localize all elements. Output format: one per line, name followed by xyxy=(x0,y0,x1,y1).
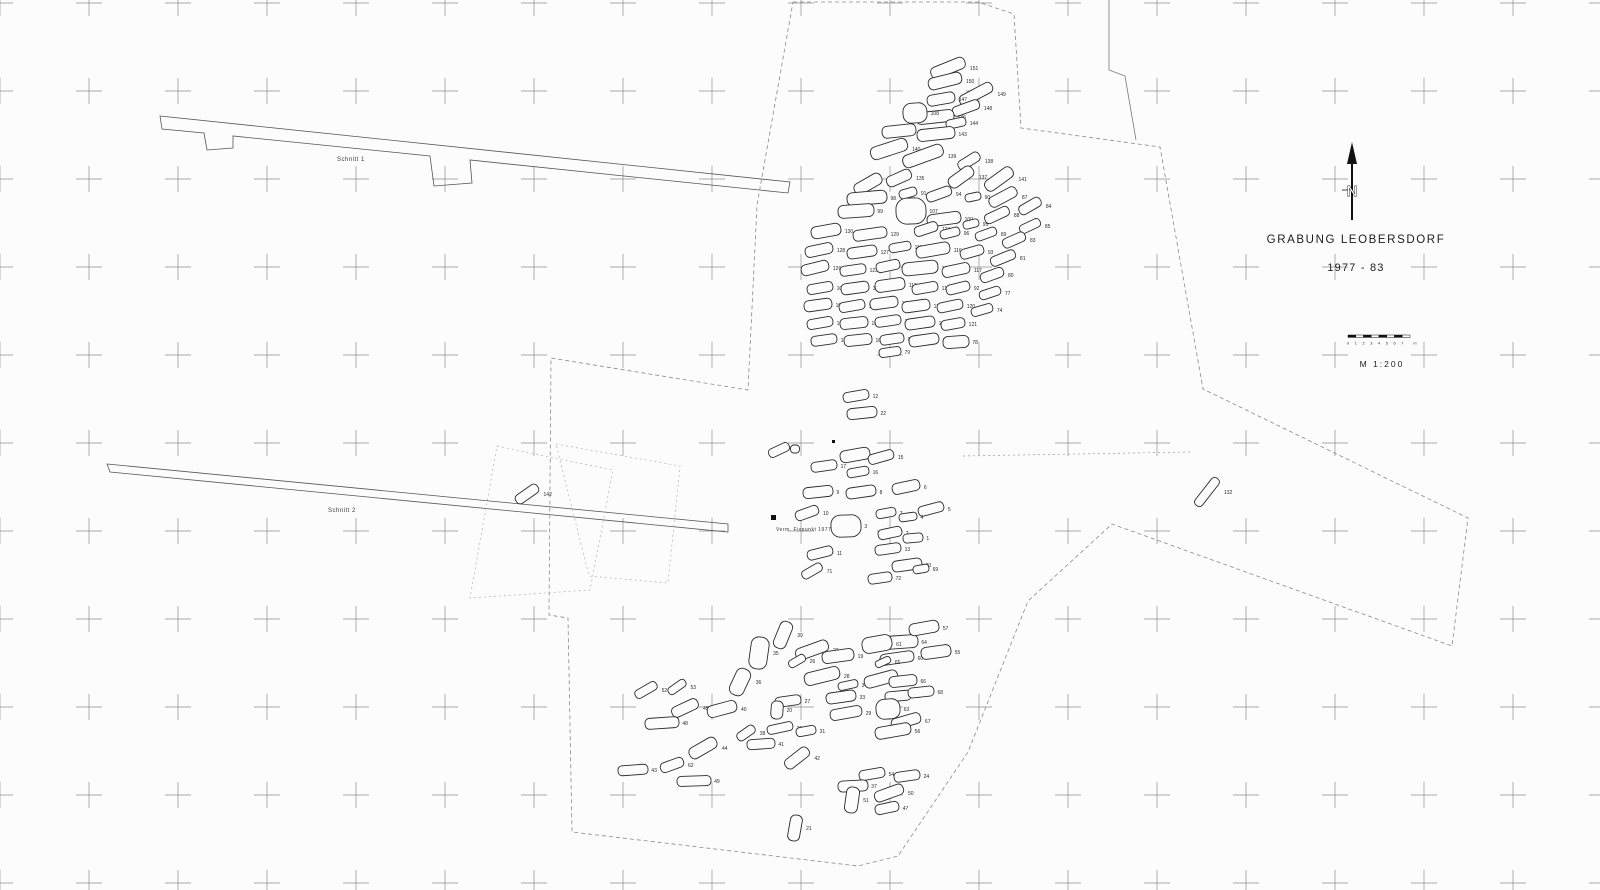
grave-number: 132 xyxy=(1224,490,1233,496)
map-years: 1977 - 83 xyxy=(1236,262,1476,274)
grave-number: 28 xyxy=(844,674,850,680)
grave-number: 64 xyxy=(921,640,927,646)
grave-number: 42 xyxy=(814,756,820,762)
grave-number: 55 xyxy=(955,650,961,656)
grave-number: 15 xyxy=(898,455,904,461)
grave-feature xyxy=(825,689,856,704)
grave-feature xyxy=(983,205,1011,225)
scale-tick-label: 6 xyxy=(1393,342,1395,346)
grave-features: 1511501491471481461081441451431401391381… xyxy=(513,56,1232,842)
grave-number: 9 xyxy=(836,490,839,496)
grave-feature xyxy=(936,298,964,313)
grave-feature xyxy=(633,680,658,700)
grave-feature xyxy=(943,335,970,349)
grave-feature xyxy=(748,636,770,670)
grave-feature xyxy=(873,783,905,804)
grave-number: 80 xyxy=(1008,273,1014,279)
grave-feature xyxy=(839,446,871,463)
grave-number: 40 xyxy=(741,707,747,713)
scale-tick-label: 4 xyxy=(1378,342,1380,346)
grave-number: 36 xyxy=(756,680,762,686)
scale-tick-label: 3 xyxy=(1370,342,1372,346)
grave-number: 37 xyxy=(871,784,877,790)
grave-number: 63 xyxy=(904,707,910,713)
grave-number: 1 xyxy=(926,536,929,542)
grave-feature xyxy=(879,332,904,345)
grave-number: 16 xyxy=(873,470,879,476)
grave-feature xyxy=(727,666,752,698)
grave-feature xyxy=(874,722,912,740)
grave-feature xyxy=(925,185,953,203)
grave-number: 141 xyxy=(1018,177,1027,183)
grave-feature xyxy=(767,441,791,458)
grave-feature xyxy=(800,259,830,276)
grave-number: 143 xyxy=(959,132,968,138)
grave-number: 33 xyxy=(860,695,866,701)
grave-number: 148 xyxy=(984,106,993,112)
grave-number: 48 xyxy=(682,721,688,727)
grave-feature xyxy=(772,620,795,651)
grave-feature xyxy=(974,226,998,242)
scale-bar: 01234567m xyxy=(1338,332,1426,348)
grave-feature xyxy=(896,197,927,224)
grave-feature xyxy=(706,699,738,718)
grave-feature xyxy=(940,317,965,331)
grave-number: 65 xyxy=(895,660,901,666)
grave-feature xyxy=(875,698,900,720)
grave-number: 94 xyxy=(956,192,962,198)
grave-feature xyxy=(888,241,911,254)
grave-number: 138 xyxy=(985,159,994,165)
grave-feature xyxy=(829,705,862,721)
grave-feature xyxy=(852,226,887,242)
grave-number: 21 xyxy=(806,826,812,832)
grave-number: 130 xyxy=(845,229,854,235)
grave-number: 98 xyxy=(890,196,896,202)
grave-number: 84 xyxy=(1046,204,1052,210)
grave-number: 78 xyxy=(972,340,978,346)
plan-annotation: Schnitt 1 xyxy=(337,157,365,163)
scale-tick-label: 7 xyxy=(1401,342,1403,346)
grave-feature xyxy=(806,545,834,561)
scale-block: 01234567m M 1:200 xyxy=(1338,332,1426,369)
grave-feature xyxy=(874,277,905,293)
grave-feature xyxy=(783,745,812,771)
grave-feature xyxy=(810,222,842,239)
grave-number: 12 xyxy=(873,394,879,400)
map-text-labels: Schnitt 1Schnitt 2Verm. Fixpunkt 1977 xyxy=(328,157,831,533)
north-east-edge xyxy=(1109,0,1136,140)
grave-number: 151 xyxy=(970,66,979,72)
grave-number: 66 xyxy=(920,679,926,685)
excavation-outlines xyxy=(107,0,1468,866)
grave-feature xyxy=(804,242,834,259)
grave-number: 62 xyxy=(688,763,694,769)
grave-number: 144 xyxy=(970,121,979,127)
grave-feature xyxy=(840,281,869,296)
grave-number: 35 xyxy=(773,651,779,657)
grave-feature xyxy=(770,701,783,720)
fixpoint-marker xyxy=(771,515,776,520)
grave-feature xyxy=(645,716,680,729)
schnitt-2-trench xyxy=(107,464,728,532)
plan-annotation: Schnitt 2 xyxy=(328,508,356,514)
scale-tick-label: 0 xyxy=(1347,342,1349,346)
grave-feature xyxy=(677,775,711,786)
grave-feature xyxy=(901,260,938,277)
grave-feature xyxy=(926,91,955,107)
grave-feature xyxy=(891,479,921,496)
grave-number: 6 xyxy=(924,485,927,491)
grave-number: 142 xyxy=(544,492,553,498)
grave-number: 29 xyxy=(866,711,872,717)
grave-number: 72 xyxy=(896,576,902,582)
grave-feature xyxy=(837,679,858,691)
grave-feature xyxy=(687,735,719,760)
grave-number: 108 xyxy=(931,111,940,117)
grave-number: 41 xyxy=(778,742,784,748)
north-letter: N xyxy=(1347,183,1358,200)
grave-feature xyxy=(667,678,688,696)
grave-number: 137 xyxy=(979,175,988,181)
grave-feature xyxy=(902,102,927,124)
grave-number: 22 xyxy=(880,411,886,417)
grave-feature xyxy=(847,406,878,420)
grave-number: 135 xyxy=(916,176,925,182)
grave-feature xyxy=(964,191,981,202)
grave-feature xyxy=(869,296,898,311)
scale-tick-label: 2 xyxy=(1362,342,1364,346)
grave-number: 129 xyxy=(891,232,900,238)
map-title: GRABUNG LEOBERSDORF xyxy=(1236,234,1476,246)
grave-feature xyxy=(877,526,903,541)
grave-feature xyxy=(513,482,540,505)
grave-feature xyxy=(945,280,971,296)
grave-number: 4 xyxy=(920,515,923,521)
area-square-a xyxy=(470,446,613,598)
grave-feature xyxy=(889,674,918,688)
grave-feature xyxy=(861,634,893,655)
scale-tick-label: m xyxy=(1413,342,1416,346)
grave-feature xyxy=(846,244,877,259)
grave-number: 24 xyxy=(924,774,930,780)
grave-feature xyxy=(838,203,875,218)
grave-feature xyxy=(867,449,895,466)
grave-feature xyxy=(979,266,1005,284)
grave-number: 13 xyxy=(905,547,911,553)
grave-number: 85 xyxy=(1045,224,1051,230)
grave-feature xyxy=(831,514,862,537)
grave-number: 19 xyxy=(858,654,864,660)
north-arrow-icon: N xyxy=(1330,140,1374,224)
grave-number: 51 xyxy=(863,798,869,804)
grave-number: 121 xyxy=(969,322,978,328)
grave-feature xyxy=(904,315,935,330)
grave-feature xyxy=(806,316,833,330)
grave-number: 44 xyxy=(722,746,728,752)
grave-feature xyxy=(908,619,940,636)
grave-feature xyxy=(878,346,901,358)
grave-feature xyxy=(978,285,1002,300)
grave-number: 139 xyxy=(948,154,957,160)
main-excavation-boundary xyxy=(549,2,1468,866)
grave-number: 127 xyxy=(881,250,890,256)
grave-number: 20 xyxy=(787,708,793,714)
grave-number: 89 xyxy=(1001,232,1007,238)
scale-tick-label: 5 xyxy=(1386,342,1388,346)
grave-feature xyxy=(875,259,901,274)
grave-number: 38 xyxy=(760,731,766,737)
grave-number: 53 xyxy=(690,685,696,691)
grave-feature xyxy=(670,697,700,719)
grave-number: 8 xyxy=(880,490,883,496)
grave-feature xyxy=(803,485,834,499)
grave-feature xyxy=(845,484,876,499)
grave-number: 61 xyxy=(896,642,902,648)
grave-number: 87 xyxy=(1022,195,1028,201)
grave-number: 147 xyxy=(959,97,968,103)
grave-number: 128 xyxy=(837,248,846,254)
grave-feature xyxy=(800,562,824,581)
grave-number: 99 xyxy=(877,209,883,215)
grave-number: 93 xyxy=(988,250,994,256)
grave-number: 5 xyxy=(948,507,951,513)
grave-feature xyxy=(794,504,820,522)
grave-feature xyxy=(766,721,793,735)
grave-number: 52 xyxy=(662,688,668,694)
grave-feature xyxy=(747,738,776,750)
grave-feature xyxy=(806,281,833,295)
grave-feature xyxy=(903,533,924,544)
grave-feature xyxy=(839,263,866,277)
grave-number: 57 xyxy=(943,626,949,632)
grave-number: 11 xyxy=(837,551,842,557)
grave-number: 69 xyxy=(933,567,939,573)
grave-feature xyxy=(791,445,800,453)
grave-number: 17 xyxy=(841,464,847,470)
grave-number: 81 xyxy=(1020,256,1026,262)
grave-number: 96 xyxy=(964,231,970,237)
grave-feature xyxy=(881,123,916,138)
grave-feature xyxy=(803,298,832,313)
grave-feature xyxy=(844,333,873,347)
grave-feature xyxy=(838,299,865,313)
grave-number: 10 xyxy=(823,511,829,517)
grave-feature xyxy=(803,665,841,686)
scale-tick-label: 1 xyxy=(1355,342,1357,346)
grave-number: 50 xyxy=(908,791,914,797)
grave-feature xyxy=(941,262,971,279)
grave-number: 31 xyxy=(820,729,826,735)
grave-feature xyxy=(810,459,837,473)
grave-feature xyxy=(842,389,869,403)
grave-number: 149 xyxy=(997,92,1006,98)
grave-feature xyxy=(885,168,913,189)
grave-feature xyxy=(846,466,869,479)
grave-number: 26 xyxy=(810,659,816,665)
survey-line xyxy=(963,452,1190,456)
scale-label: M 1:200 xyxy=(1338,359,1426,369)
grave-feature xyxy=(908,686,935,699)
grave-feature xyxy=(867,571,892,584)
plan-annotation: Verm. Fixpunkt 1977 xyxy=(776,527,831,533)
grave-feature xyxy=(920,644,951,660)
grave-feature xyxy=(659,756,685,774)
grave-feature xyxy=(875,507,896,519)
grave-feature xyxy=(787,814,803,842)
grave-number: 150 xyxy=(966,79,975,85)
grave-feature xyxy=(874,314,901,328)
grave-feature xyxy=(874,542,901,556)
grave-feature xyxy=(959,244,985,260)
grave-number: 92 xyxy=(974,286,980,292)
grave-number: 3 xyxy=(864,524,867,530)
grave-number: 39 xyxy=(797,633,803,639)
grave-number: 56 xyxy=(915,729,921,735)
grave-number: 67 xyxy=(925,719,931,725)
schnitt-1-trench xyxy=(160,116,790,193)
grave-feature xyxy=(618,764,649,776)
grave-number: 74 xyxy=(997,308,1003,314)
grave-number: 27 xyxy=(805,699,811,705)
grave-number: 117 xyxy=(974,268,982,274)
grave-number: 47 xyxy=(903,806,909,812)
grave-feature xyxy=(908,332,939,347)
grave-number: 71 xyxy=(827,569,833,575)
grave-feature xyxy=(840,316,869,330)
excavation-map: 1511501491471481461081441451431401391381… xyxy=(0,0,1600,890)
grave-number: 49 xyxy=(714,779,720,785)
grave-number: 83 xyxy=(1030,238,1036,244)
grave-feature xyxy=(858,767,885,781)
grave-feature xyxy=(1193,476,1221,508)
grave-number: 54 xyxy=(889,772,895,778)
grave-feature xyxy=(893,769,920,783)
grave-number: 43 xyxy=(651,768,657,774)
grave-number: 88 xyxy=(1014,213,1020,219)
title-block: GRABUNG LEOBERSDORF 1977 - 83 xyxy=(1236,234,1476,274)
grave-feature xyxy=(810,333,837,347)
grave-feature xyxy=(915,241,951,259)
grave-number: 79 xyxy=(905,350,911,356)
grave-number: 68 xyxy=(937,690,943,696)
grave-feature xyxy=(874,801,900,816)
site-plan-canvas: 1511501491471481461081441451431401391381… xyxy=(0,0,1600,890)
north-arrowhead xyxy=(1347,142,1357,164)
fixpoint-marker xyxy=(832,440,835,443)
grave-number: 77 xyxy=(1005,291,1011,297)
